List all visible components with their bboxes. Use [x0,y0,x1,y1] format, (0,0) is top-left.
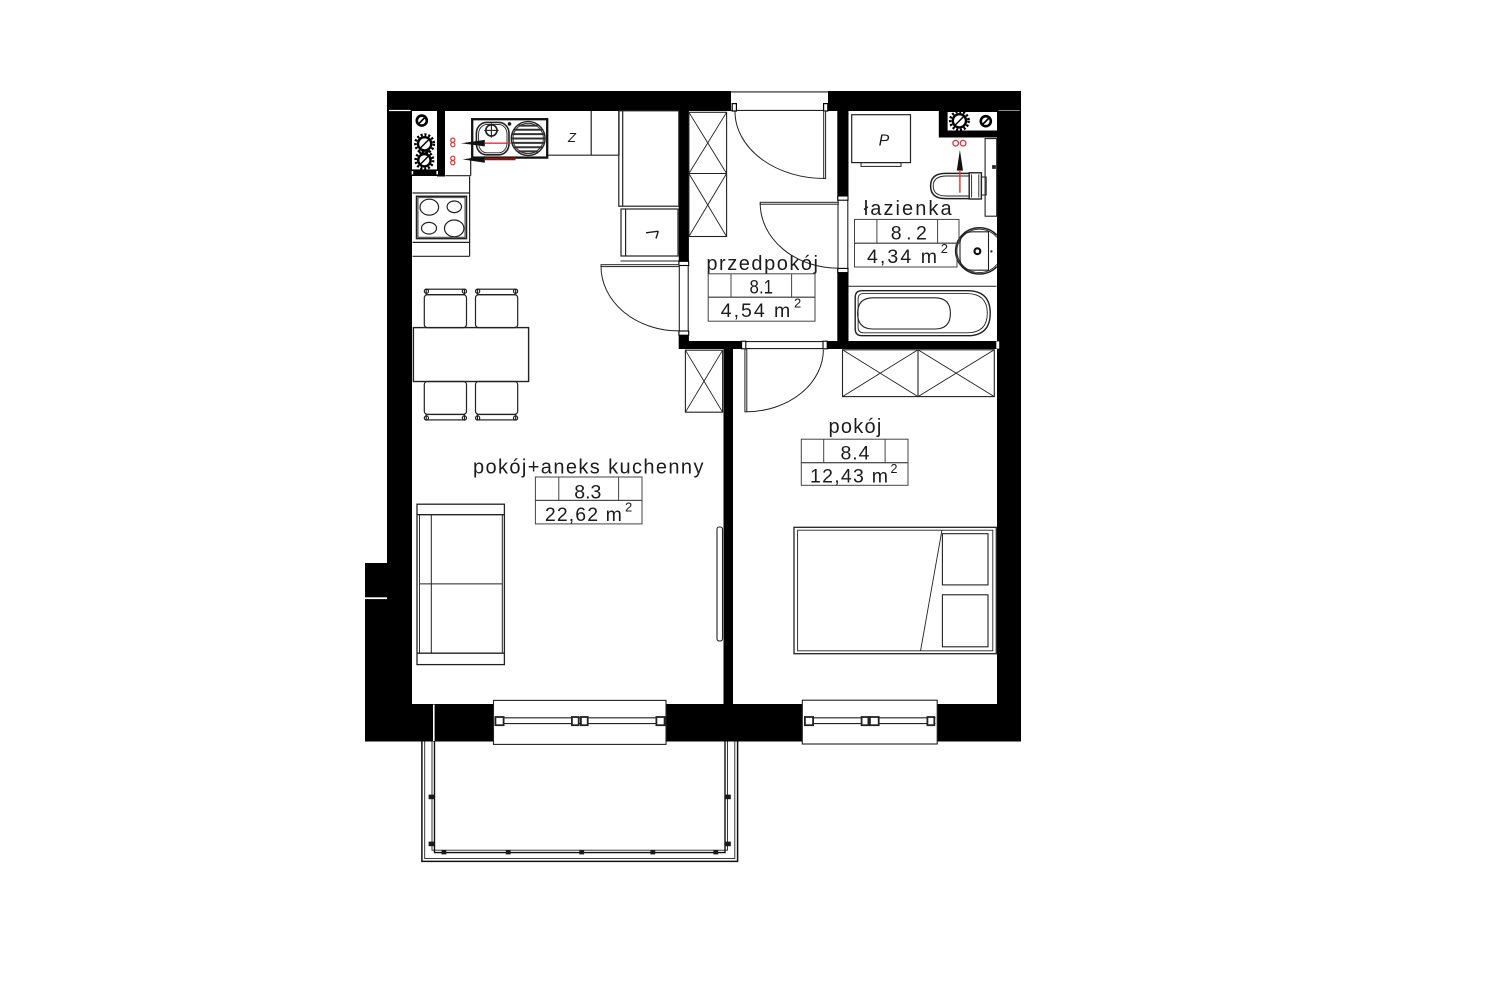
svg-text:8.2: 8.2 [891,223,927,245]
svg-text:22,62 m: 22,62 m [545,504,622,526]
svg-text:4,34 m: 4,34 m [867,246,937,268]
svg-text:P: P [879,133,890,150]
svg-text:8.4: 8.4 [841,442,870,464]
svg-text:4,54 m: 4,54 m [721,300,791,322]
svg-text:2: 2 [625,499,632,514]
svg-text:pokój: pokój [829,416,882,438]
svg-text:pokój+aneks kuchenny: pokój+aneks kuchenny [473,457,704,479]
svg-text:8.1: 8.1 [750,276,774,298]
svg-text:12,43 m: 12,43 m [810,465,888,487]
svg-text:2: 2 [891,462,898,476]
svg-text:Z: Z [567,130,577,145]
svg-text:2: 2 [794,295,801,310]
svg-text:przedpokój: przedpokój [706,253,818,275]
svg-text:8.3: 8.3 [574,481,601,503]
svg-text:2: 2 [941,241,948,256]
